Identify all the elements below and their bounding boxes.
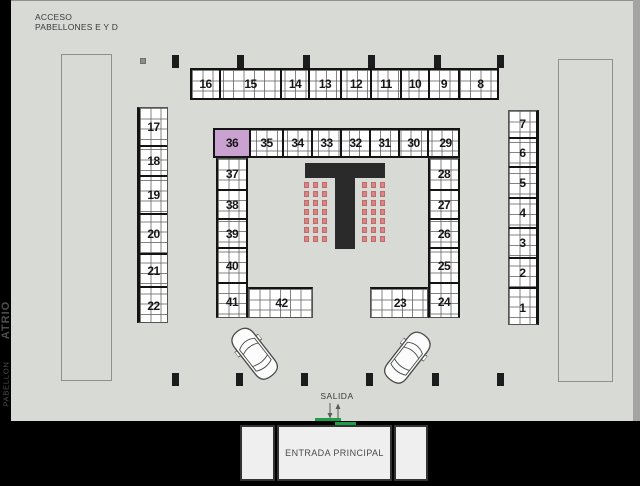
- booth-8[interactable]: 8: [460, 70, 501, 98]
- entrance-label: ENTRADA PRINCIPAL: [285, 448, 384, 458]
- chair-icon: [322, 218, 327, 224]
- pillar-icon: [237, 55, 244, 68]
- booth-15[interactable]: 15: [221, 70, 282, 98]
- booth-11[interactable]: 11: [372, 70, 402, 98]
- booth-22[interactable]: 22: [140, 288, 167, 324]
- booth-col-right-outer: 7654321: [508, 110, 539, 325]
- chair-icon: [362, 182, 367, 188]
- booth-col-left-inner: 3738394041: [216, 158, 248, 318]
- booth-2[interactable]: 2: [509, 259, 536, 289]
- booth-5[interactable]: 5: [509, 168, 536, 199]
- booth-col-right-inner: 2827262524: [428, 158, 460, 318]
- booth-col-left-outer: 171819202122: [137, 107, 168, 323]
- booth-3[interactable]: 3: [509, 229, 536, 259]
- booth-25[interactable]: 25: [430, 249, 458, 284]
- booth-36[interactable]: 36: [215, 130, 251, 156]
- chair-icon: [380, 236, 385, 242]
- booth-12[interactable]: 12: [342, 70, 372, 98]
- chair-icon: [371, 209, 376, 215]
- chair-icon: [322, 227, 327, 233]
- booth-row-middle: 3635343332313029: [213, 128, 460, 158]
- booth-20[interactable]: 20: [140, 215, 167, 255]
- pillar-icon: [236, 373, 243, 386]
- access-label: ACCESO PABELLONES E Y D: [35, 12, 118, 32]
- booth-13[interactable]: 13: [310, 70, 342, 98]
- access-line2: PABELLONES E Y D: [35, 22, 118, 32]
- chair-icon: [322, 191, 327, 197]
- chair-icon: [380, 227, 385, 233]
- pillar-icon: [366, 373, 373, 386]
- chair-icon: [380, 209, 385, 215]
- booth-strip-42: 42: [248, 287, 313, 318]
- booth-30[interactable]: 30: [400, 130, 429, 156]
- booth-42[interactable]: 42: [249, 289, 314, 317]
- chair-icon: [313, 227, 318, 233]
- floorplan-canvas: ACCESO PABELLONES E Y D 1615141312111098…: [0, 0, 640, 486]
- pillar-icon: [368, 55, 375, 68]
- booth-9[interactable]: 9: [430, 70, 460, 98]
- booth-10[interactable]: 10: [402, 70, 430, 98]
- booth-1[interactable]: 1: [509, 289, 536, 326]
- chair-icon: [362, 218, 367, 224]
- chair-icon: [362, 236, 367, 242]
- access-line1: ACCESO: [35, 12, 118, 22]
- booth-18[interactable]: 18: [140, 147, 167, 177]
- chair-icon: [371, 182, 376, 188]
- booth-27[interactable]: 27: [430, 191, 458, 220]
- entrance-side-box-left: [240, 425, 275, 481]
- chair-icon: [313, 218, 318, 224]
- chair-icon: [304, 191, 309, 197]
- booth-33[interactable]: 33: [313, 130, 342, 156]
- right-hall-outline: [558, 59, 613, 382]
- pillar-icon: [303, 55, 310, 68]
- chair-icon: [304, 236, 309, 242]
- booth-16[interactable]: 16: [192, 70, 221, 98]
- booth-24[interactable]: 24: [430, 284, 458, 319]
- chair-icon: [362, 209, 367, 215]
- booth-40[interactable]: 40: [218, 249, 246, 284]
- booth-14[interactable]: 14: [282, 70, 310, 98]
- booth-26[interactable]: 26: [430, 220, 458, 249]
- chair-icon: [313, 200, 318, 206]
- chair-icon: [371, 227, 376, 233]
- chair-icon: [304, 200, 309, 206]
- booth-32[interactable]: 32: [342, 130, 371, 156]
- booth-7[interactable]: 7: [509, 111, 536, 139]
- chair-icon: [304, 182, 309, 188]
- booth-row-top: 1615141312111098: [190, 68, 499, 100]
- chair-icon: [362, 200, 367, 206]
- entrance-threshold-bar: [315, 418, 341, 421]
- exit-label: SALIDA: [305, 391, 369, 401]
- pillar-icon: [497, 55, 504, 68]
- pavilion-label: PABELLON: [2, 361, 11, 406]
- booth-23[interactable]: 23: [371, 289, 429, 317]
- atrium-label: ATRIO: [0, 301, 12, 339]
- chair-icon: [371, 200, 376, 206]
- chair-icon: [371, 218, 376, 224]
- chair-block-right: [362, 182, 385, 242]
- booth-21[interactable]: 21: [140, 255, 167, 288]
- chair-block-left: [304, 182, 327, 242]
- entrance-side-box-right: [394, 425, 428, 481]
- frame-right-edge: [633, 0, 640, 421]
- booth-41[interactable]: 41: [218, 284, 246, 319]
- chair-icon: [362, 227, 367, 233]
- pillar-icon: [172, 55, 179, 68]
- chair-icon: [304, 218, 309, 224]
- booth-19[interactable]: 19: [140, 177, 167, 215]
- chair-icon: [322, 209, 327, 215]
- chair-icon: [371, 191, 376, 197]
- stage-t-stem: [335, 178, 355, 249]
- booth-38[interactable]: 38: [218, 191, 246, 220]
- chair-icon: [313, 191, 318, 197]
- chair-icon: [371, 236, 376, 242]
- pillar-icon: [432, 373, 439, 386]
- chair-icon: [322, 182, 327, 188]
- chair-icon: [362, 191, 367, 197]
- booth-4[interactable]: 4: [509, 199, 536, 229]
- pillar-icon: [434, 55, 441, 68]
- booth-28[interactable]: 28: [430, 159, 458, 191]
- chair-icon: [304, 209, 309, 215]
- booth-37[interactable]: 37: [218, 159, 246, 191]
- stage-t-top: [305, 163, 385, 178]
- booth-31[interactable]: 31: [371, 130, 400, 156]
- booth-6[interactable]: 6: [509, 139, 536, 168]
- chair-icon: [380, 182, 385, 188]
- booth-29[interactable]: 29: [429, 130, 462, 156]
- chair-icon: [380, 218, 385, 224]
- booth-39[interactable]: 39: [218, 220, 246, 249]
- entrance-main-box: ENTRADA PRINCIPAL: [277, 425, 392, 481]
- chair-icon: [304, 227, 309, 233]
- marker-square: [140, 58, 146, 64]
- booth-35[interactable]: 35: [251, 130, 284, 156]
- chair-icon: [322, 200, 327, 206]
- chair-icon: [313, 209, 318, 215]
- pillar-icon: [172, 373, 179, 386]
- chair-icon: [313, 236, 318, 242]
- booth-17[interactable]: 17: [140, 108, 167, 147]
- booth-34[interactable]: 34: [284, 130, 313, 156]
- booth-strip-23: 23: [370, 287, 428, 318]
- pillar-icon: [301, 373, 308, 386]
- chair-icon: [380, 200, 385, 206]
- chair-icon: [380, 191, 385, 197]
- chair-icon: [313, 182, 318, 188]
- chair-icon: [322, 236, 327, 242]
- left-hall-outline: [61, 54, 112, 381]
- pillar-icon: [497, 373, 504, 386]
